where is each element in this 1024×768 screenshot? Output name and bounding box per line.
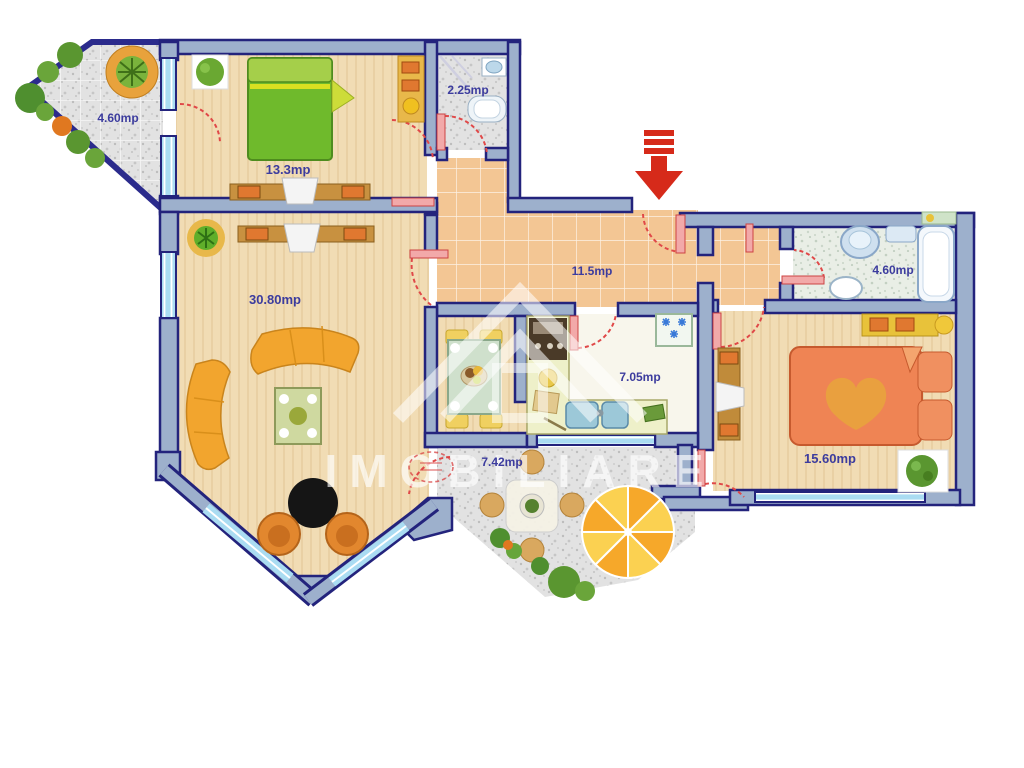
door-leaf-entrance [676, 215, 685, 253]
plate-icon [488, 343, 498, 353]
cup-icon [307, 428, 317, 438]
room-bathroom-label: 4.60mp [872, 263, 913, 277]
window-bedroom-small-1 [161, 58, 176, 110]
shrub-icon [575, 581, 595, 601]
sink-basin-icon [486, 61, 502, 73]
room-bedroom-small-label: 13.3mp [266, 162, 311, 177]
dresser-drawer-icon [896, 318, 914, 331]
door-jamb-hall [746, 224, 753, 252]
door-leaf-bathroom [782, 276, 824, 284]
umbrella-icon [582, 486, 674, 578]
shrub-icon [85, 148, 105, 168]
window-living-left [161, 252, 176, 318]
floorplan-drawing: IMOBILIARE 4.60mp 13.3mp 2.25mp 11.5mp 3… [0, 0, 1024, 768]
plant-icon [906, 455, 938, 487]
window-kitchen [537, 435, 655, 445]
wall-living-left-b [160, 318, 178, 456]
dresser-drawer-icon [870, 318, 888, 331]
room-hallway-label: 11.5mp [572, 264, 613, 278]
bed-small-stripe-icon [250, 84, 330, 89]
door-leaf-living [410, 250, 448, 258]
bowl-icon [289, 407, 307, 425]
entrance-arrow-bar [644, 139, 674, 145]
cup-icon [279, 394, 289, 404]
shrub-icon [57, 42, 83, 68]
salad-icon [525, 499, 539, 513]
bench-item-icon [342, 186, 364, 198]
room-kitchen-label: 7.05mp [619, 370, 660, 384]
sink-icon [886, 226, 916, 242]
pillow-icon [918, 352, 952, 392]
shrub-icon [531, 557, 549, 575]
plant-leaf-icon [923, 471, 933, 481]
armchair-seat-icon [336, 525, 358, 547]
plant-leaf-icon [200, 63, 210, 73]
wall-dining-kitchen [515, 316, 527, 402]
burner-icon [547, 343, 553, 349]
cup-icon [279, 428, 289, 438]
door-leaf-bedroom-small [392, 198, 434, 206]
tv-icon [282, 178, 318, 204]
plant-icon [196, 58, 224, 86]
floorplan-page: IMOBILIARE 4.60mp 13.3mp 2.25mp 11.5mp 3… [0, 0, 1024, 768]
entrance-arrow-bar [644, 130, 674, 136]
pillow-icon [918, 400, 952, 440]
shrub-icon [66, 130, 90, 154]
bench-item-icon [720, 352, 738, 364]
dresser-drawer-icon [402, 62, 419, 73]
room-living-label: 30.80mp [249, 292, 301, 307]
room-balcony-label: 4.60mp [97, 111, 138, 125]
room-bedroom-large-label: 15.60mp [804, 451, 856, 466]
wall-living-left-a [160, 212, 178, 254]
wall-entrance-stub [698, 227, 713, 255]
window-bedroom-large [755, 492, 925, 502]
door-leaf-wc [437, 114, 445, 150]
wall-hall-top [508, 198, 632, 212]
wall-top [160, 40, 520, 54]
bench-item-icon [720, 424, 738, 436]
wall-wc-right [508, 42, 520, 202]
armchair-seat-icon [268, 525, 290, 547]
room-wc-label: 2.25mp [447, 83, 488, 97]
wall-wc-bottom-b [486, 148, 508, 160]
bed-small-pillow-icon [248, 58, 332, 82]
dresser-drawer-icon [402, 80, 419, 91]
room-terrace-label: 7.42mp [481, 455, 522, 469]
plant-leaf-icon [911, 461, 921, 471]
dresser-knob-icon [403, 98, 419, 114]
wall-kitchen-bed2 [698, 283, 713, 450]
toilet-bowl-icon [849, 231, 871, 249]
bench-item-icon [246, 228, 268, 240]
watermark-text: IMOBILIARE [325, 445, 716, 497]
shrub-icon [548, 566, 580, 598]
toilet-bowl-icon [474, 100, 500, 118]
room-hallway-floor-main [437, 210, 698, 307]
bathtub-inner-icon [923, 232, 949, 296]
shelf-item-icon [926, 214, 934, 222]
mirror-icon [935, 316, 953, 334]
shrub-icon [36, 103, 54, 121]
entrance-arrow-bar [644, 148, 674, 154]
wall-right-exterior [956, 213, 974, 505]
cup-icon [307, 394, 317, 404]
flower-icon [503, 540, 513, 550]
wall-bed1-right-a [425, 42, 437, 155]
bench-item-icon [238, 186, 260, 198]
shrub-icon [37, 61, 59, 83]
bidet-icon [830, 277, 862, 299]
door-leaf-bedroom-large [713, 313, 721, 349]
window-bedroom-small-2 [161, 136, 176, 196]
flower-icon [52, 116, 72, 136]
tv-icon [284, 224, 320, 252]
wall-living-right-a [425, 215, 437, 252]
bench-item-icon [344, 228, 366, 240]
wall-bathroom-left-a [780, 227, 793, 249]
